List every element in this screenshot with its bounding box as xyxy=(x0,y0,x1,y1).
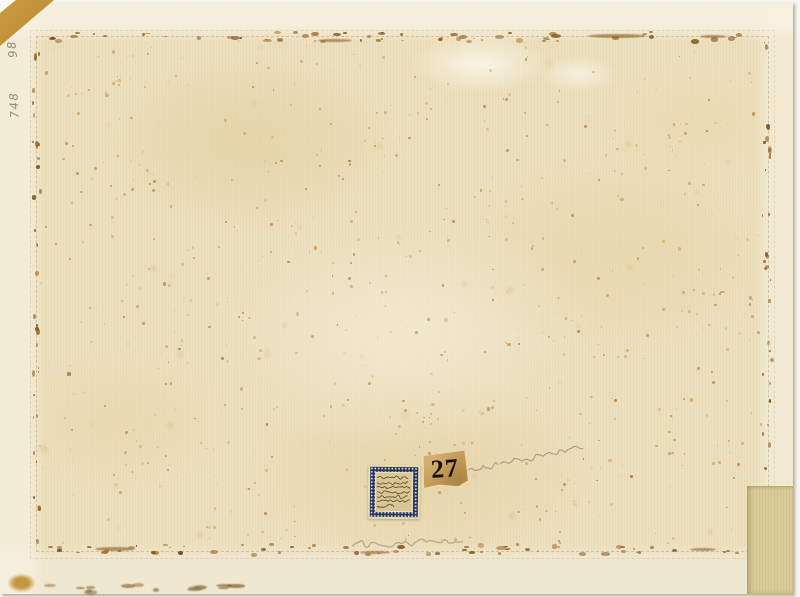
stamp-handwriting-svg xyxy=(376,473,410,511)
scanned-page: 27 98 748 xyxy=(0,0,800,597)
margin-number-bottom: 748 xyxy=(6,82,22,129)
stamp-label xyxy=(368,465,421,520)
number-tag-text: 27 xyxy=(430,455,460,483)
number-tag: 27 xyxy=(422,451,468,489)
backing-patch xyxy=(747,486,793,594)
corner-stain-blob xyxy=(8,574,35,592)
pencil-scribble-svg xyxy=(350,526,465,553)
pencil-note-bottom xyxy=(350,526,465,553)
stamp-label-handwriting xyxy=(375,472,413,512)
